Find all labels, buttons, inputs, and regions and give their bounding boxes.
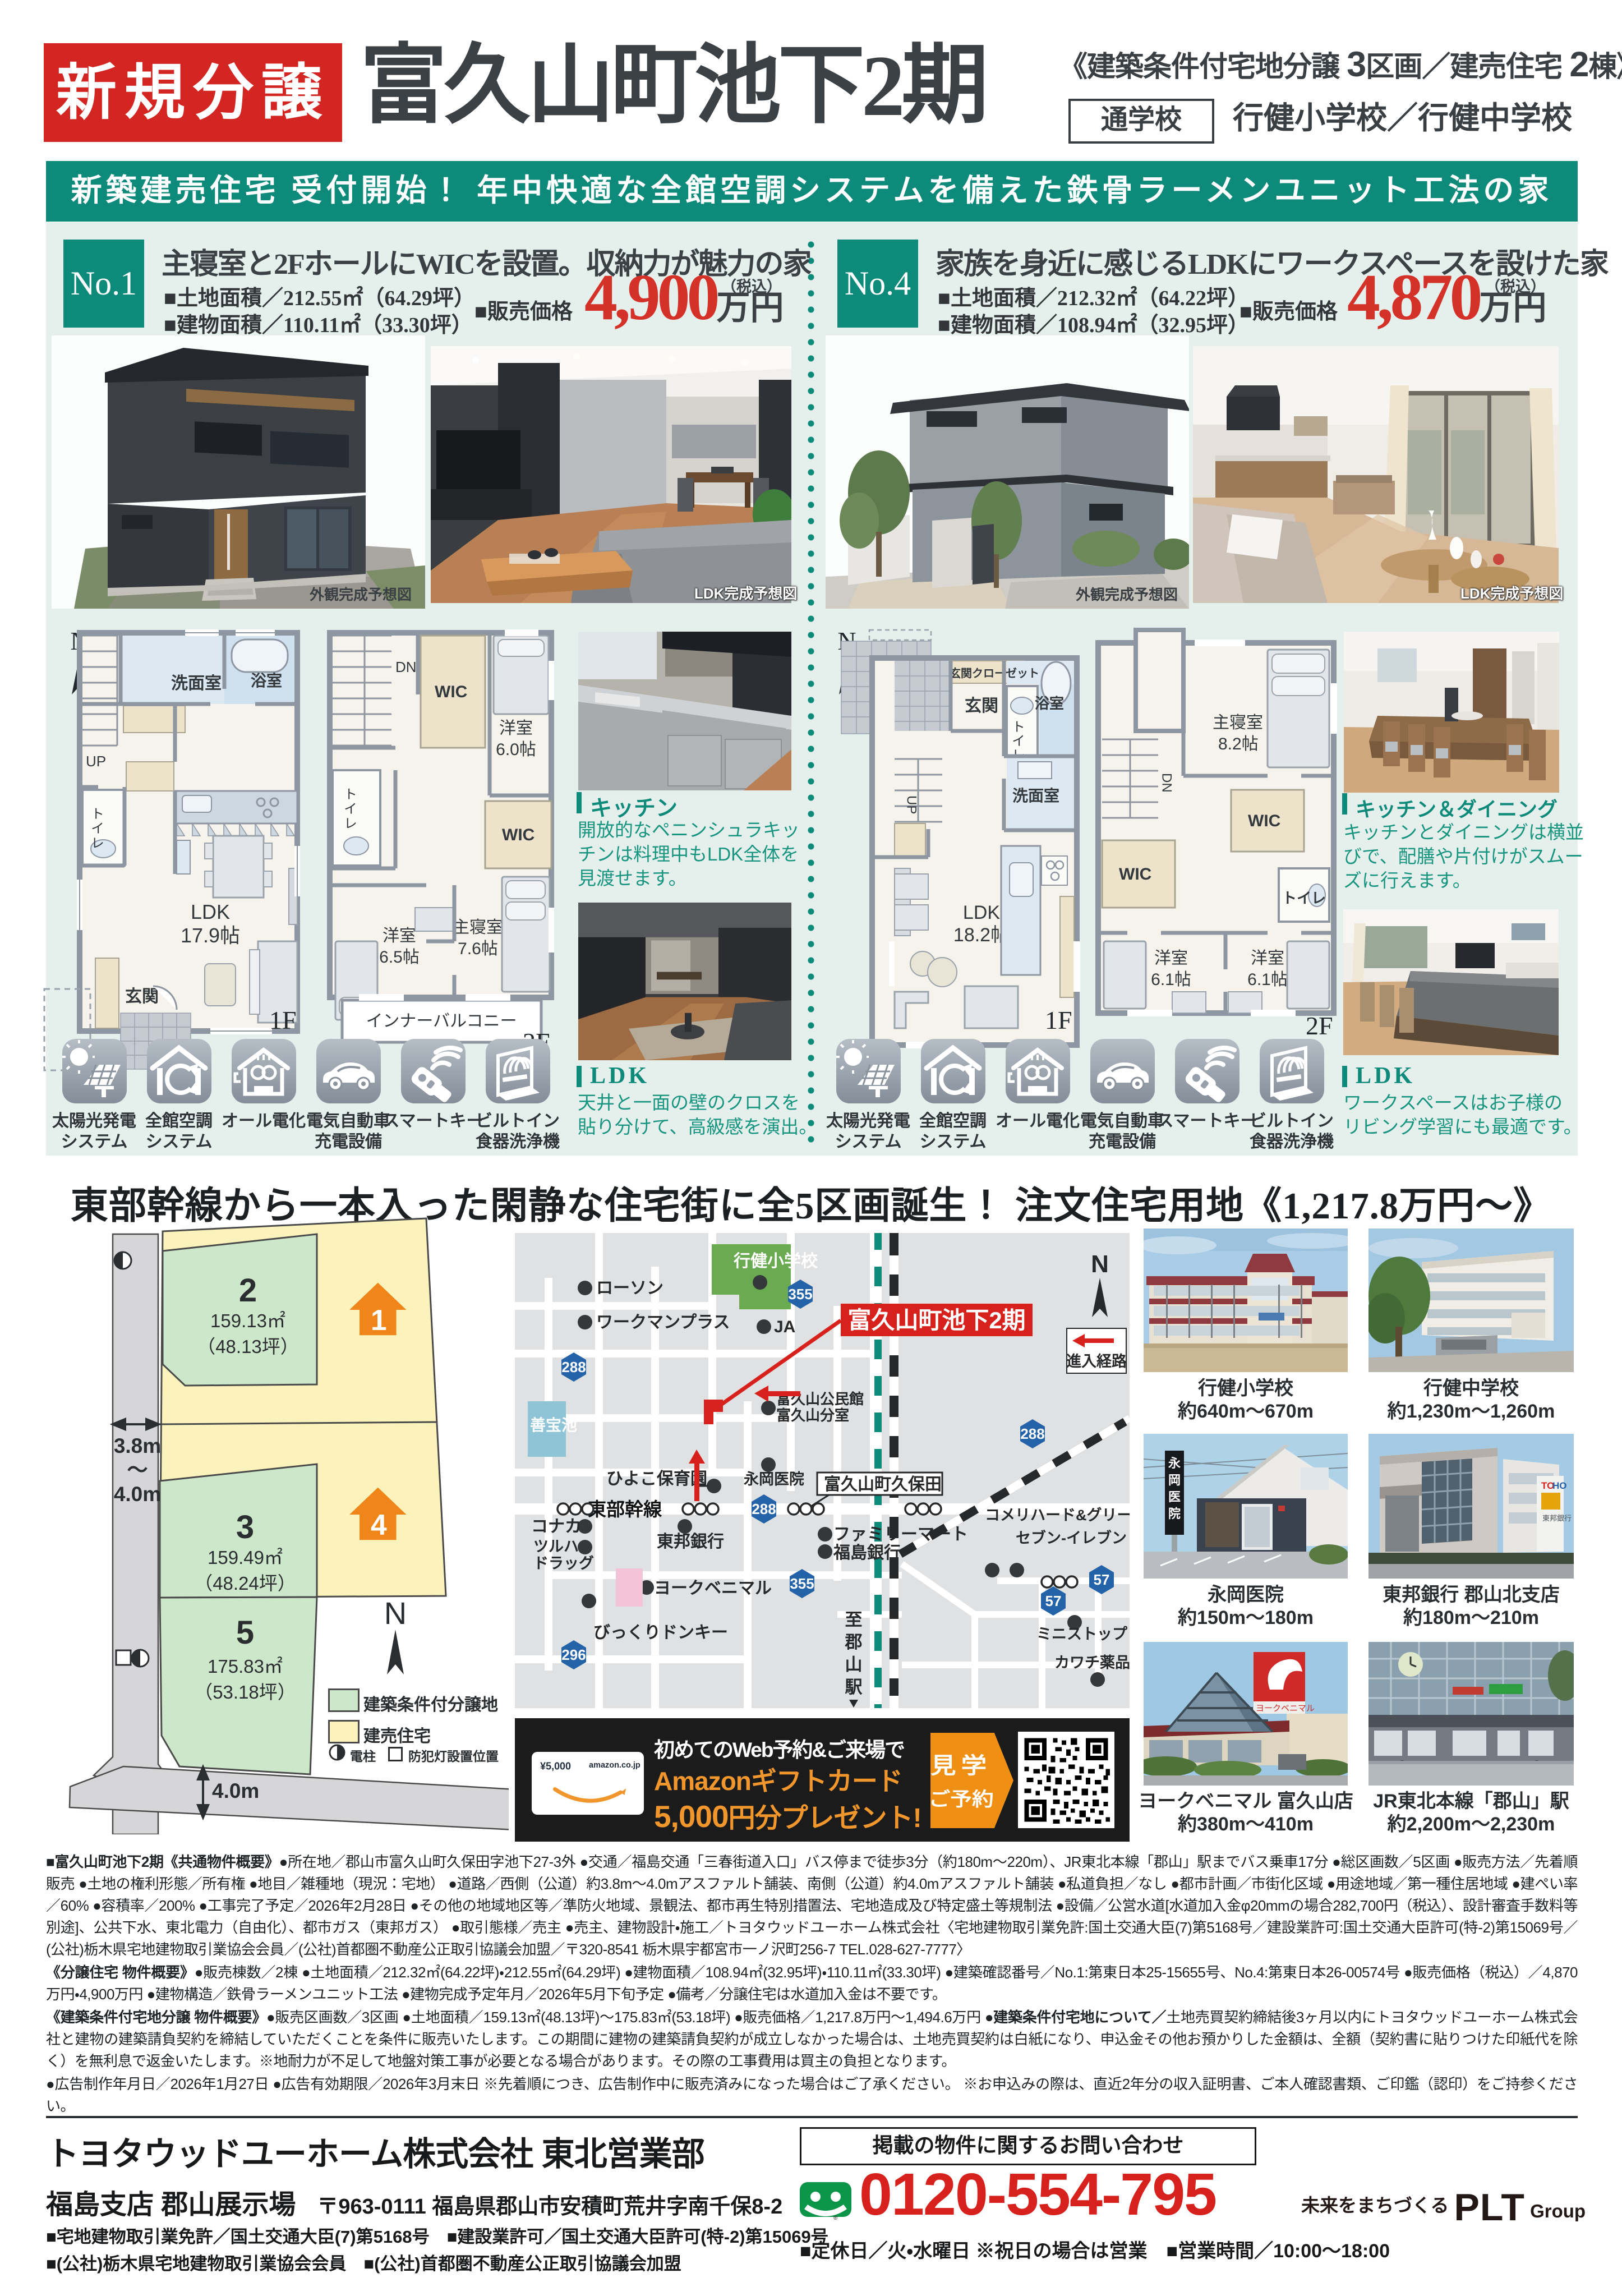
svg-text:DN: DN [1159,773,1174,793]
svg-text:DN: DN [395,659,417,675]
svg-text:ミニストップ: ミニストップ [1036,1626,1128,1642]
svg-text:駅: 駅 [845,1677,863,1697]
svg-text:1: 1 [371,1304,387,1336]
svg-text:HO: HO [1552,1480,1567,1491]
svg-text:洋室: 洋室 [1251,949,1284,968]
svg-text:ツルハ: ツルハ [533,1538,579,1555]
svg-text:LDK: LDK [191,900,230,923]
svg-text:トイレ: トイレ [342,787,357,831]
svg-text:5: 5 [236,1614,254,1651]
svg-text:洋室: 洋室 [383,927,416,945]
svg-text:インナーバルコニー: インナーバルコニー [366,1012,517,1030]
svg-text:主寝室: 主寝室 [1213,714,1263,732]
svg-text:WIC: WIC [435,683,467,701]
svg-text:福島銀行: 福島銀行 [833,1544,901,1562]
svg-text:郡: 郡 [845,1632,863,1652]
svg-text:UP: UP [86,753,106,770]
svg-text:2: 2 [239,1272,257,1309]
svg-text:ひよこ保育園: ひよこ保育園 [606,1470,707,1488]
svg-text:WIC: WIC [1119,865,1151,884]
svg-text:玄関: 玄関 [965,697,998,715]
svg-text:東部幹線: 東部幹線 [588,1499,662,1520]
svg-text:主寝室: 主寝室 [453,918,503,937]
svg-text:57: 57 [1045,1593,1062,1609]
svg-text:ご予約: ご予約 [930,1788,994,1810]
svg-text:3: 3 [236,1509,254,1545]
svg-text:ローソン: ローソン [596,1279,663,1297]
svg-text:行健小学校: 行健小学校 [733,1251,818,1271]
svg-text:カワチ薬品: カワチ薬品 [1054,1654,1130,1671]
svg-text:ファミリーマート: ファミリーマート [833,1525,968,1544]
svg-text:ヨークベニマル: ヨークベニマル [1256,1704,1315,1713]
svg-text:8.2帖: 8.2帖 [1218,735,1259,753]
svg-text:善宝池: 善宝池 [530,1416,577,1434]
svg-text:288: 288 [752,1501,776,1517]
svg-text:6.5帖: 6.5帖 [379,948,420,967]
svg-text:1F: 1F [1045,1006,1072,1034]
svg-text:至: 至 [845,1610,863,1630]
svg-text:®: ® [833,2215,838,2220]
svg-text:159.49㎡: 159.49㎡ [208,1547,283,1568]
svg-text:ワークマンプラス: ワークマンプラス [596,1313,730,1332]
svg-text:玄関: 玄関 [125,987,159,1006]
svg-text:東邦銀行: 東邦銀行 [1542,1514,1572,1522]
svg-text:6.1帖: 6.1帖 [1247,970,1288,989]
svg-text:4: 4 [371,1508,387,1541]
svg-text:岡: 岡 [1168,1473,1181,1487]
svg-text:永: 永 [1168,1456,1181,1470]
svg-text:WIC: WIC [502,826,534,844]
svg-text:（53.18坪）: （53.18坪） [194,1682,296,1703]
svg-text:富久山町久保田: 富久山町久保田 [824,1475,942,1494]
svg-text:医: 医 [1168,1490,1181,1504]
svg-text:6.1帖: 6.1帖 [1151,970,1191,989]
svg-text:N: N [1091,1250,1109,1278]
svg-text:（48.13坪）: （48.13坪） [197,1336,299,1357]
svg-text:LDK: LDK [963,902,1000,923]
svg-text:（48.24坪）: （48.24坪） [194,1573,296,1594]
svg-text:山: 山 [845,1655,863,1674]
svg-text:WIC: WIC [1248,812,1280,830]
svg-text:セブン-イレブン: セブン-イレブン [1016,1529,1127,1547]
svg-text:UP: UP [904,795,919,814]
svg-text:159.13㎡: 159.13㎡ [210,1310,285,1331]
svg-text:JA: JA [774,1318,795,1336]
svg-text:6.0帖: 6.0帖 [496,740,536,759]
svg-text:¥5,000: ¥5,000 [540,1760,571,1772]
svg-text:進入経路: 進入経路 [1066,1352,1127,1370]
svg-text:296: 296 [561,1646,586,1663]
svg-text:洋室: 洋室 [1154,949,1188,968]
svg-text:57: 57 [1094,1571,1110,1588]
svg-text:洗面室: 洗面室 [171,674,222,693]
svg-text:amazon.co.jp: amazon.co.jp [589,1761,640,1770]
svg-text:富久山町池下2期: 富久山町池下2期 [847,1307,1025,1333]
svg-text:玄関クローゼット: 玄関クローゼット [950,666,1039,680]
svg-text:2F: 2F [1306,1011,1333,1040]
svg-text:見学: 見学 [930,1754,992,1779]
svg-text:1F: 1F [269,1006,297,1034]
svg-text:トイレ: トイレ [89,807,104,850]
svg-text:トイレ: トイレ [1282,890,1326,907]
svg-text:N: N [384,1596,407,1631]
svg-text:ヨークベニマル: ヨークベニマル [654,1579,772,1598]
svg-text:洗面室: 洗面室 [1012,787,1059,804]
svg-text:東邦銀行: 東邦銀行 [657,1533,724,1551]
svg-text:浴室: 浴室 [1035,695,1064,712]
svg-text:355: 355 [788,1286,812,1303]
svg-text:院: 院 [1168,1507,1181,1521]
svg-text:288: 288 [1020,1425,1044,1442]
svg-text:コナカ: コナカ [531,1517,582,1536]
svg-text:富久山分室: 富久山分室 [776,1407,849,1424]
svg-text:175.83㎡: 175.83㎡ [208,1656,283,1677]
svg-text:永岡医院: 永岡医院 [743,1471,804,1488]
svg-text:びっくりドンキー: びっくりドンキー [593,1623,728,1642]
svg-text:17.9帖: 17.9帖 [181,924,240,947]
svg-text:288: 288 [561,1359,586,1375]
svg-text:7.6帖: 7.6帖 [458,940,498,958]
svg-text:コメリハード&グリーン: コメリハード&グリーン [985,1506,1130,1524]
svg-text:355: 355 [790,1575,814,1592]
svg-text:浴室: 浴室 [251,672,282,689]
svg-text:ドラッグ: ドラッグ [533,1554,594,1572]
svg-text:洋室: 洋室 [499,719,533,738]
